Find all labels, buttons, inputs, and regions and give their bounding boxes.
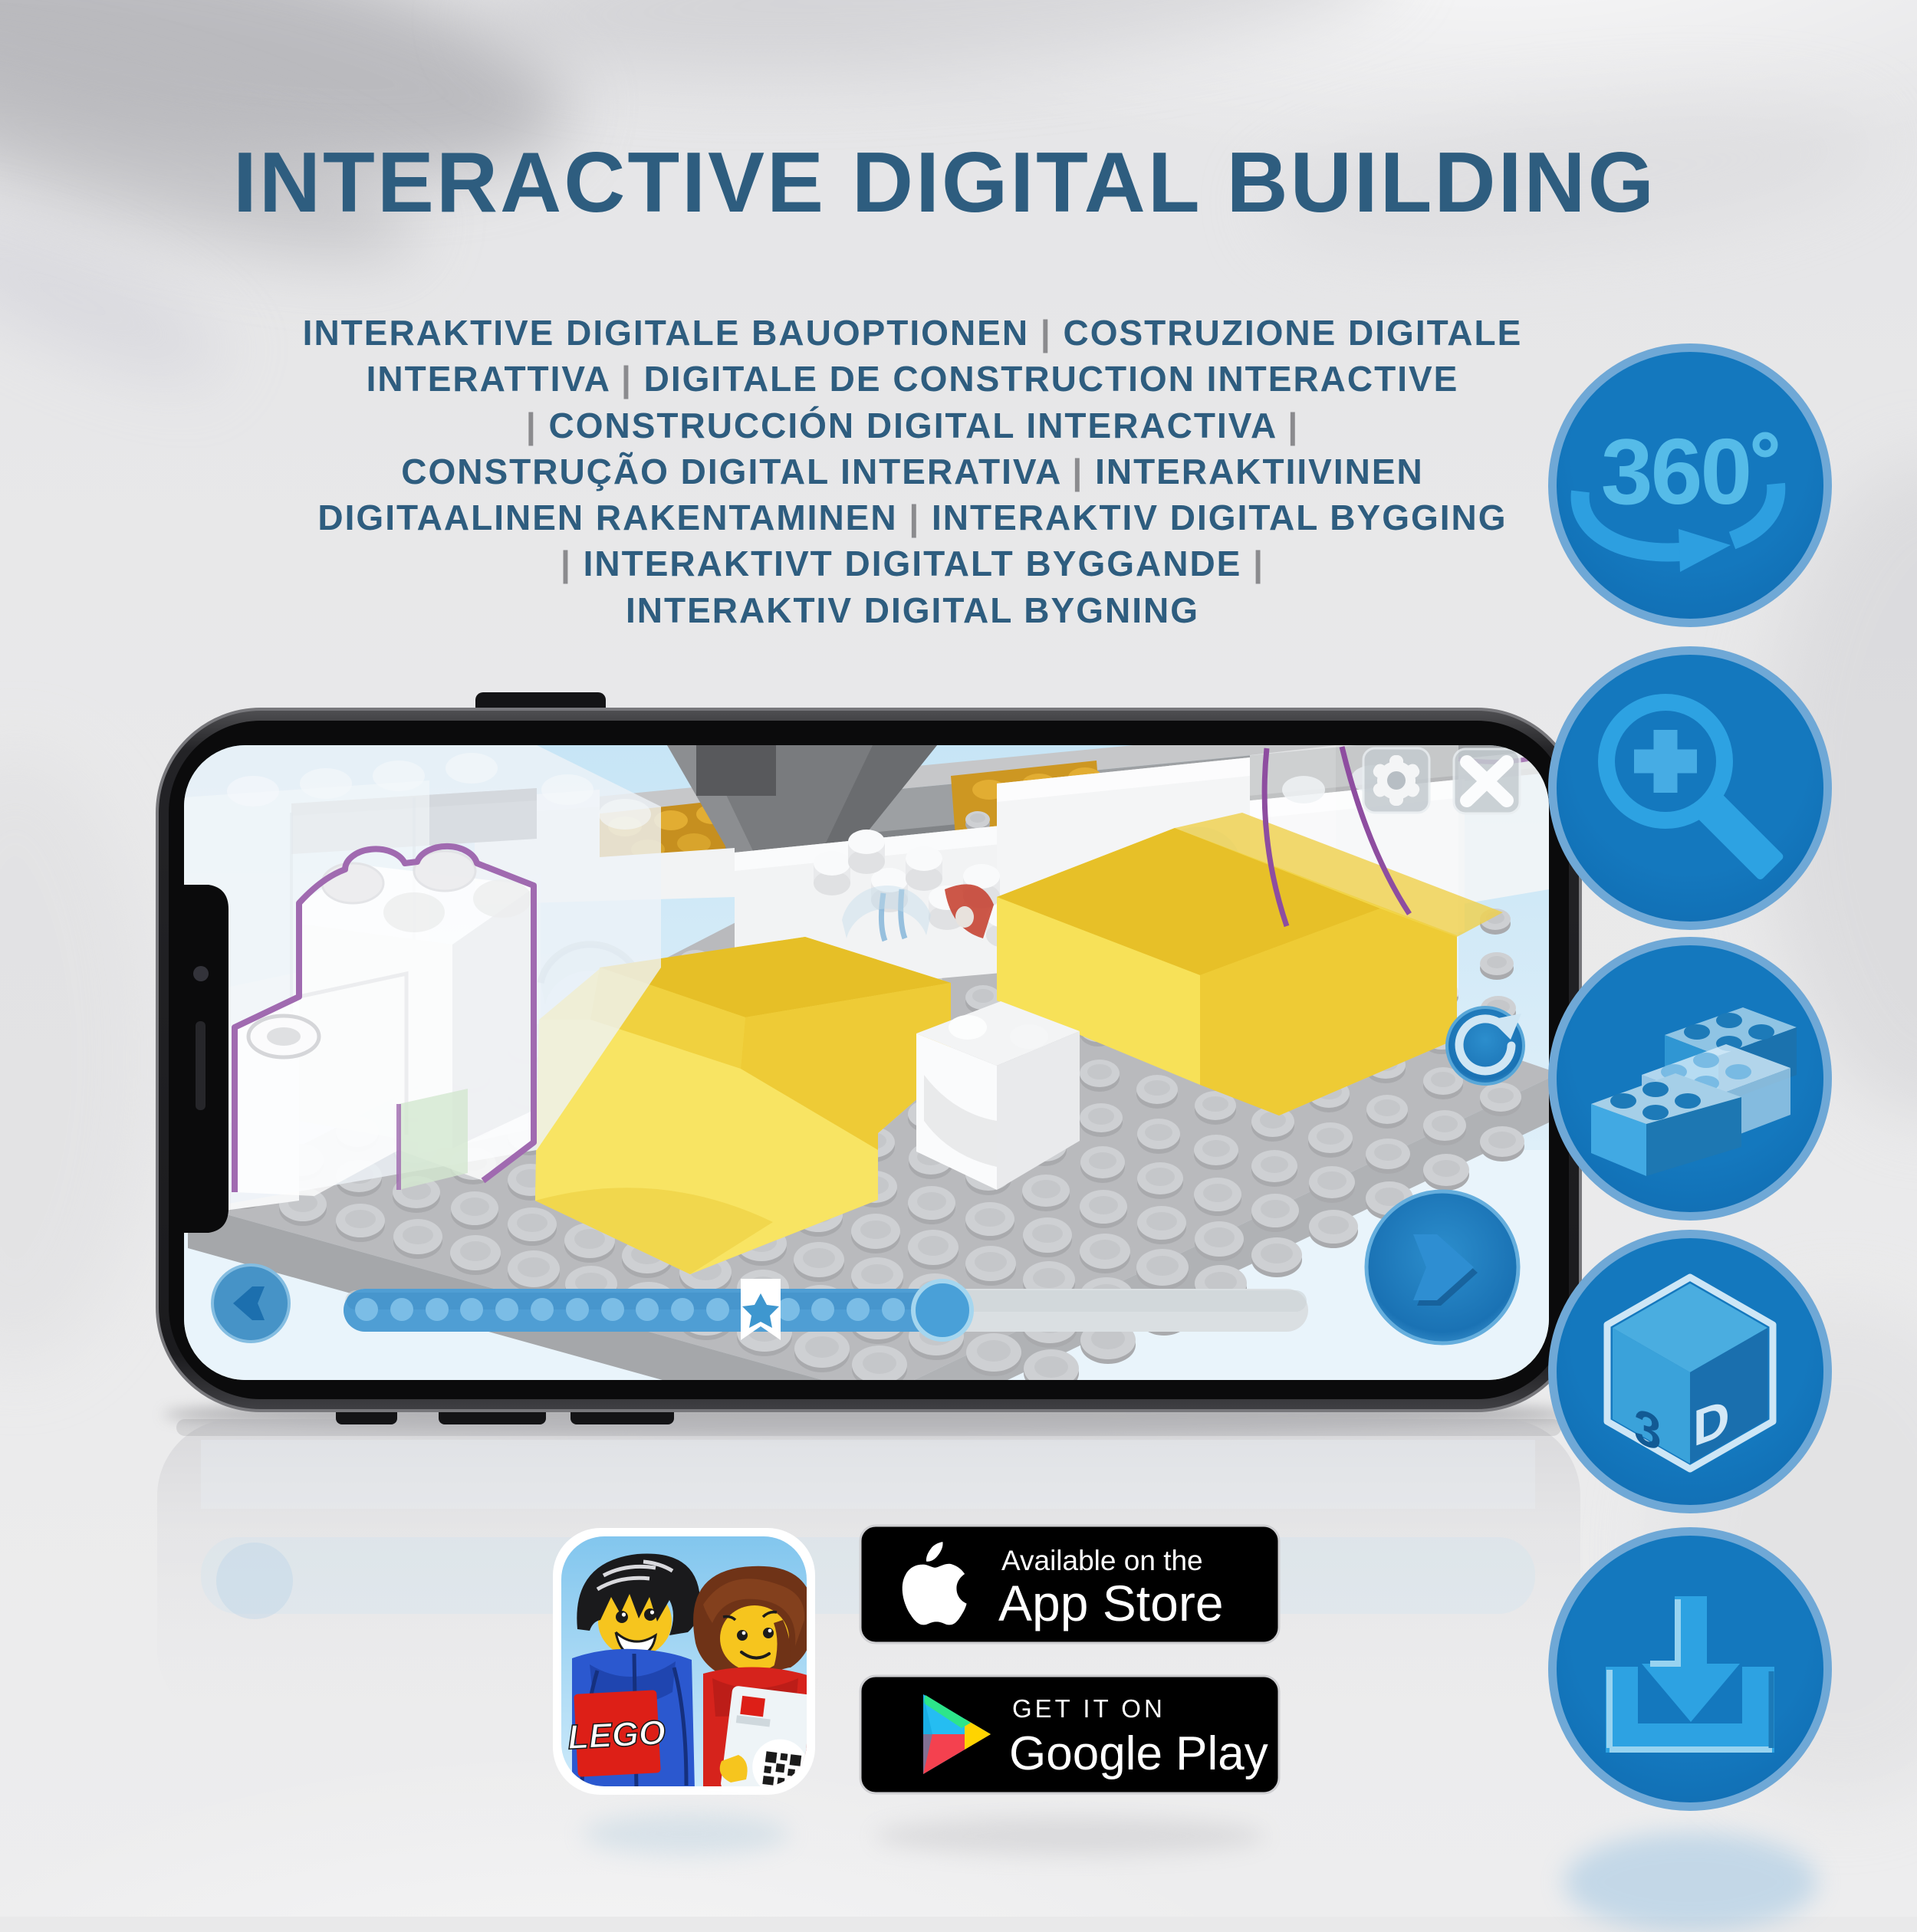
svg-text:Google Play: Google Play [1009,1727,1268,1780]
svg-text:GET IT ON: GET IT ON [1012,1694,1166,1723]
svg-text:360: 360 [1601,419,1751,524]
svg-text:App Store: App Store [998,1575,1224,1631]
svg-text:Available on the: Available on the [1001,1545,1203,1576]
svg-text:3: 3 [1634,1398,1662,1463]
svg-text:LEGO: LEGO [567,1713,666,1757]
